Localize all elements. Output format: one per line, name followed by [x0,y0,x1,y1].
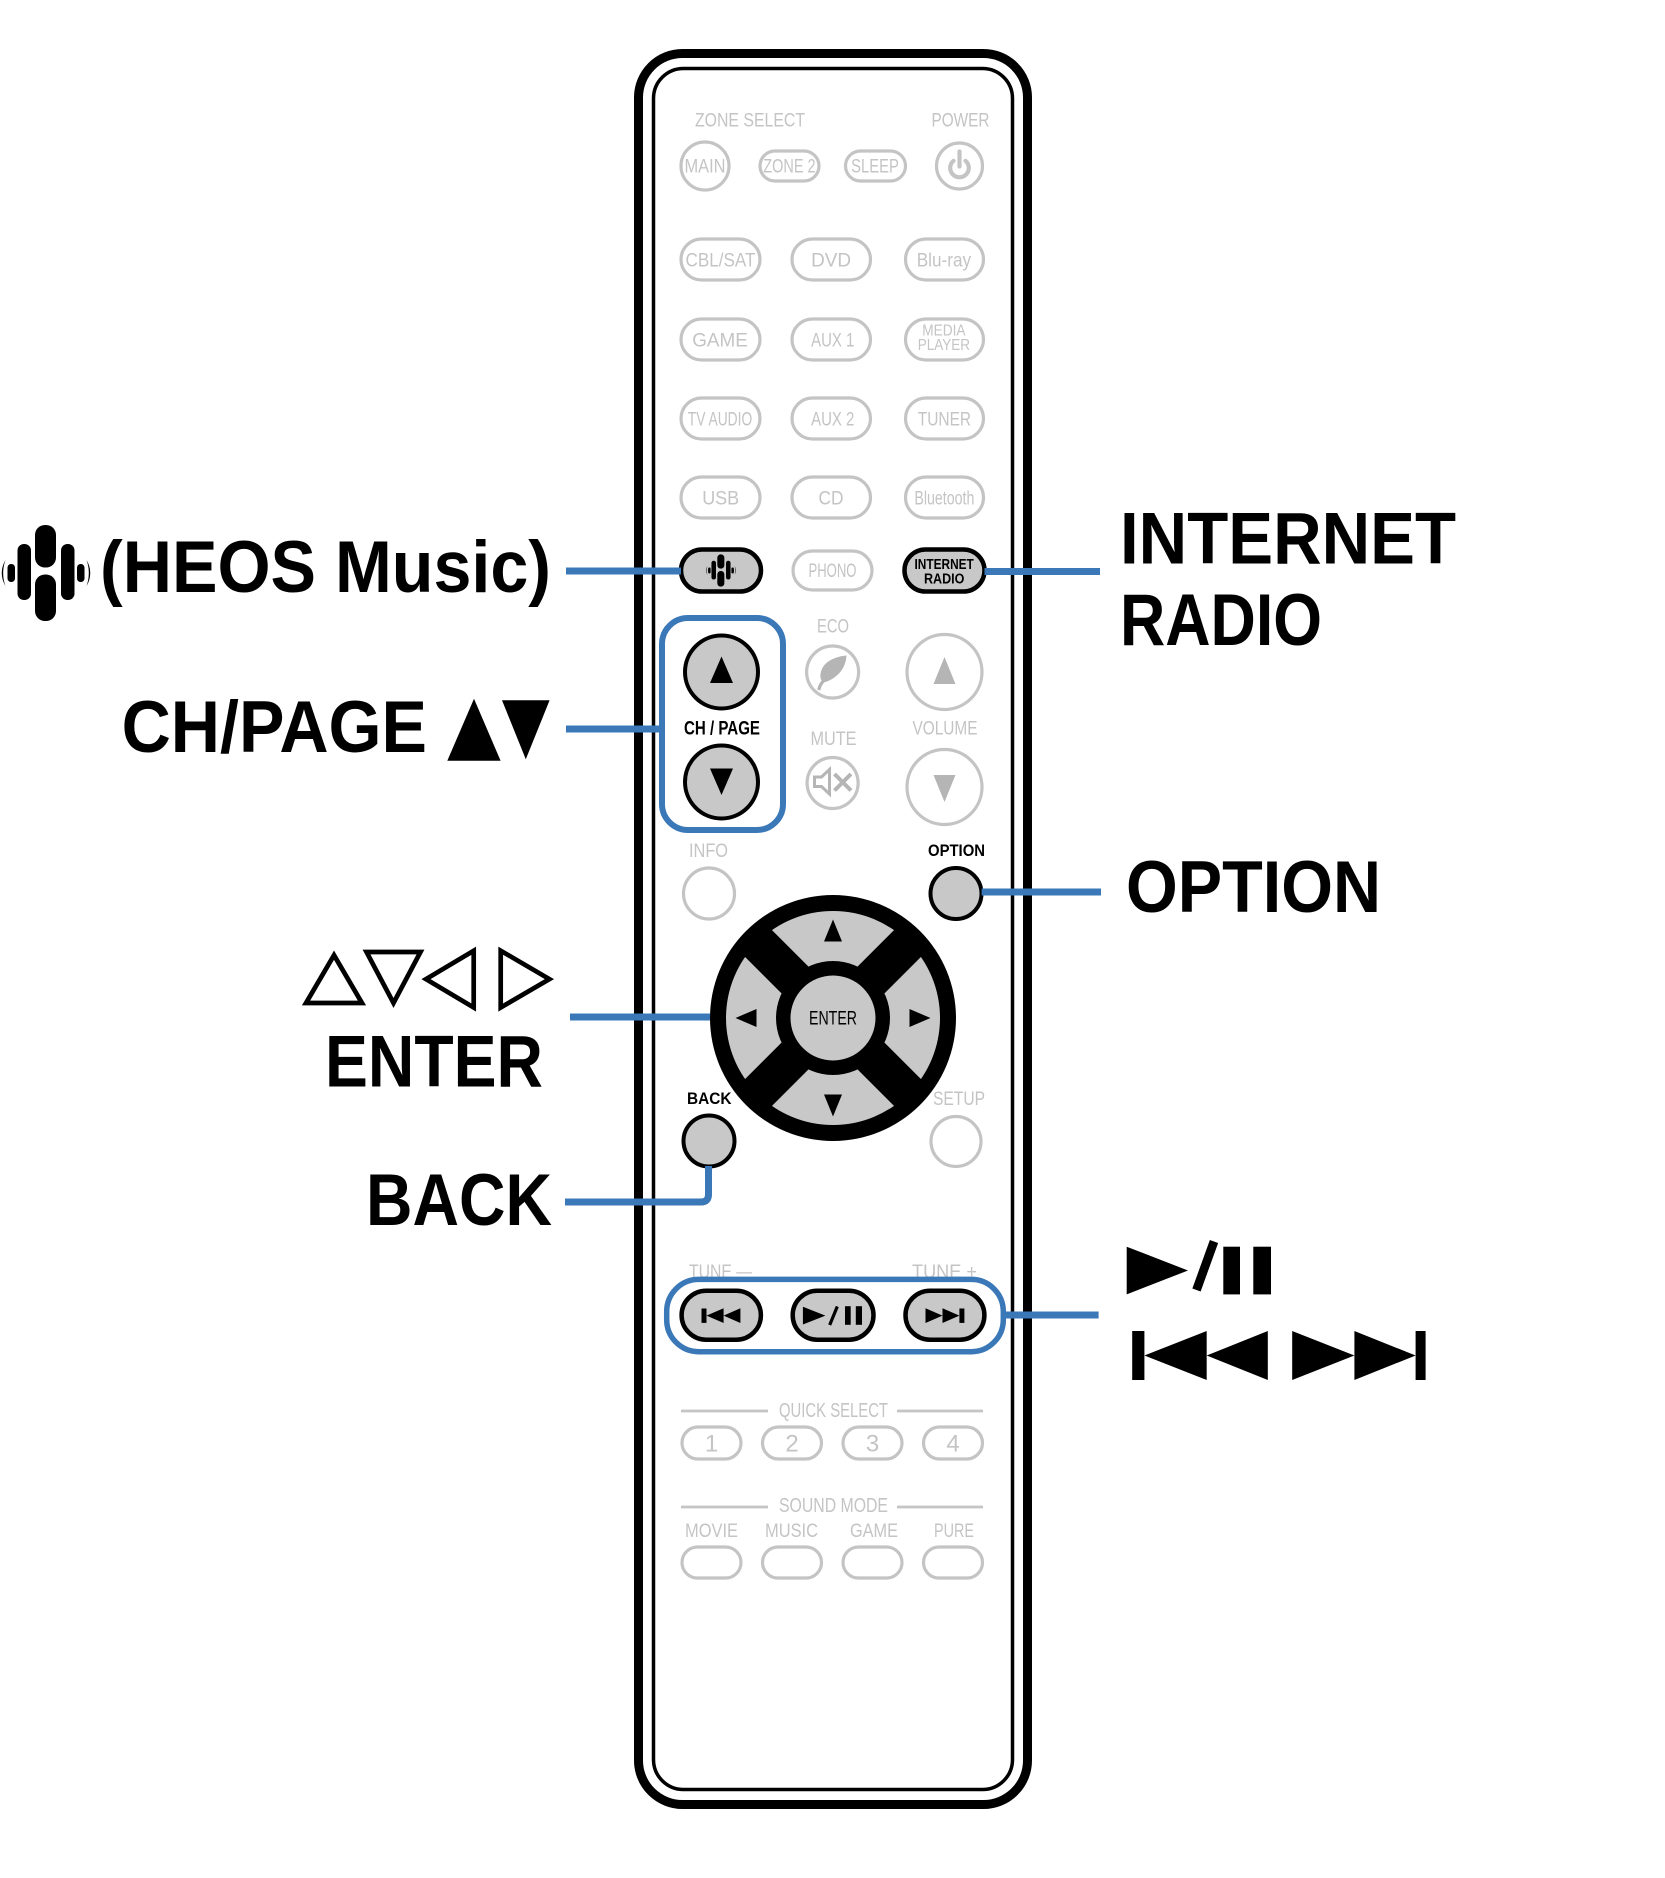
svg-text:RADIO: RADIO [1120,580,1322,661]
svg-text:MUSIC: MUSIC [765,1521,818,1542]
svg-text:MUTE: MUTE [811,729,857,750]
svg-text:QUICK SELECT: QUICK SELECT [779,1400,888,1422]
svg-text:USB: USB [702,488,739,509]
svg-text:TV AUDIO: TV AUDIO [688,409,752,430]
svg-text:SLEEP: SLEEP [851,157,899,178]
svg-text:Bluetooth: Bluetooth [914,488,974,509]
svg-text:CH / PAGE: CH / PAGE [684,718,760,740]
svg-text:ZONE 2: ZONE 2 [763,157,815,178]
svg-text:ZONE SELECT: ZONE SELECT [695,111,805,132]
svg-text:BACK: BACK [366,1160,552,1241]
svg-text:SETUP: SETUP [933,1089,985,1110]
svg-text:2: 2 [785,1431,798,1458]
svg-text:MAIN: MAIN [685,157,726,178]
svg-text:SOUND MODE: SOUND MODE [779,1495,888,1517]
svg-text:ENTER: ENTER [809,1009,857,1030]
svg-text:AUX 1: AUX 1 [811,330,854,351]
svg-text:VOLUME: VOLUME [913,719,978,740]
svg-text:PURE: PURE [934,1521,974,1542]
svg-text:PHONO: PHONO [809,561,857,582]
svg-text:POWER: POWER [932,111,990,132]
svg-text:3: 3 [866,1431,879,1458]
svg-text:TUNER: TUNER [918,409,971,430]
svg-text:INFO: INFO [689,841,728,862]
svg-text:AUX 2: AUX 2 [811,409,854,430]
svg-text:CH/PAGE: CH/PAGE [122,687,427,768]
svg-text:RADIO: RADIO [924,572,964,588]
svg-text:INTERNET: INTERNET [1120,498,1456,579]
svg-text:DVD: DVD [811,250,851,271]
svg-text:CBL/SAT: CBL/SAT [686,250,756,271]
svg-text:OPTION: OPTION [1126,847,1381,928]
svg-text:GAME: GAME [692,330,748,351]
svg-text:ENTER: ENTER [325,1022,543,1103]
svg-text:(HEOS Music): (HEOS Music) [100,527,551,608]
svg-text:CD: CD [819,488,844,509]
svg-text:Blu-ray: Blu-ray [917,250,972,271]
svg-text:GAME: GAME [850,1521,898,1542]
svg-text:OPTION: OPTION [928,842,985,860]
svg-text:1: 1 [705,1431,718,1458]
svg-text:PLAYER: PLAYER [918,337,970,354]
svg-text:BACK: BACK [687,1090,732,1108]
svg-text:ECO: ECO [817,617,849,638]
svg-text:4: 4 [946,1431,959,1458]
svg-text:MOVIE: MOVIE [685,1521,738,1542]
